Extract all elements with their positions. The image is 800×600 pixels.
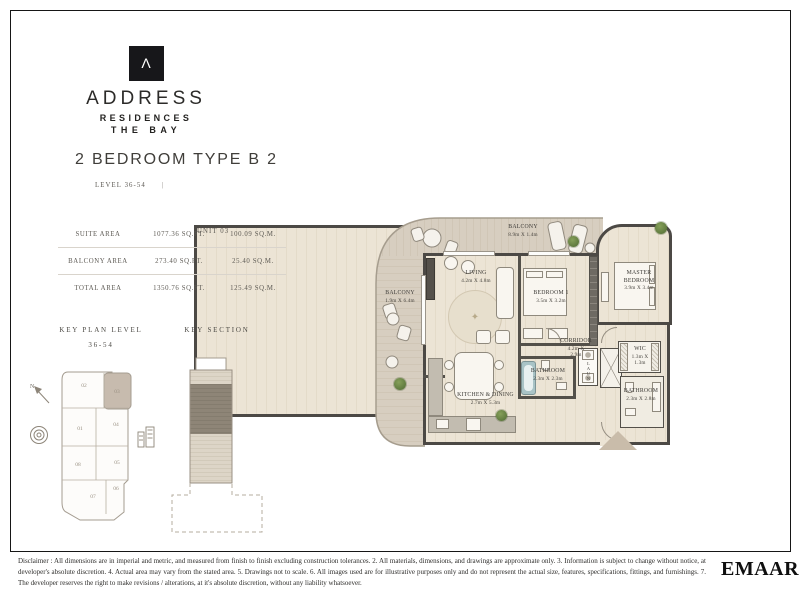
room-living-label: LIVING4.2m X 4.8m xyxy=(448,270,504,284)
section-podium-dashed xyxy=(172,483,262,532)
north-arrow-icon xyxy=(34,386,49,403)
area-sqm: 25.40 SQ.M. xyxy=(220,258,286,265)
section-lower xyxy=(190,434,232,483)
tree-icon xyxy=(31,427,48,444)
plant-icon xyxy=(568,236,579,247)
plant-icon xyxy=(394,378,406,390)
area-sqft: 273.40 SQ.FT. xyxy=(138,258,220,265)
brand-name: ADDRESS xyxy=(84,88,208,110)
key-plan-unit: 08 xyxy=(75,462,81,468)
area-sqft: 1077.36 SQ.FT. xyxy=(138,231,220,238)
room-bedroom1-label: BEDROOM 13.5m X 3.2m xyxy=(523,290,579,304)
window xyxy=(528,251,570,256)
level-unit-divider: | xyxy=(162,182,164,189)
key-plan-heading: KEY PLAN LEVEL xyxy=(41,326,161,334)
dresser xyxy=(523,328,543,339)
key-plan-unit: 07 xyxy=(90,494,96,500)
plant-icon xyxy=(655,222,667,234)
armchair xyxy=(444,256,458,270)
pillow xyxy=(526,271,543,278)
area-label: TOTAL AREA xyxy=(58,285,138,292)
table-row: BALCONY AREA 273.40 SQ.FT. 25.40 SQ.M. xyxy=(58,247,286,274)
key-plan-unit: 04 xyxy=(113,422,119,428)
city-icon xyxy=(138,427,154,447)
level-label: LEVEL 36-54 xyxy=(95,182,146,189)
area-table: SUITE AREA 1077.36 SQ.FT. 100.09 SQ.M. B… xyxy=(58,221,286,301)
armchair xyxy=(476,330,491,344)
desk xyxy=(601,272,609,302)
key-plan-unit: 02 xyxy=(81,383,87,389)
key-plan-unit: 03 xyxy=(114,389,120,395)
sink xyxy=(436,419,449,429)
section-roof xyxy=(196,358,226,370)
area-sqm: 125.49 SQ.M. xyxy=(220,285,286,292)
wall xyxy=(573,356,576,398)
sink xyxy=(625,408,636,416)
key-plan-unit: 01 xyxy=(77,426,83,432)
pillow xyxy=(546,271,563,278)
north-label: N xyxy=(30,384,35,390)
stove xyxy=(466,418,481,431)
page-title: 2 BEDROOM TYPE B 2 xyxy=(75,151,278,169)
rug: ✦ xyxy=(448,290,502,344)
level-unit-row: LEVEL 36-54 | UNIT 03 xyxy=(95,182,164,189)
key-section xyxy=(165,352,280,552)
wardrobe xyxy=(589,256,598,346)
area-sqm: 100.09 SQ.M. xyxy=(220,231,286,238)
area-label: BALCONY AREA xyxy=(58,258,138,265)
key-plan-level-range: 36-54 xyxy=(41,341,161,349)
sink xyxy=(556,382,567,390)
tv-console xyxy=(426,258,435,300)
kitchen-counter xyxy=(428,358,443,416)
key-plan-unit: 05 xyxy=(114,460,120,466)
room-bathroom2-label: BATHROOM2.3m X 2.8m xyxy=(615,388,667,402)
room-balcony-top-label: BALCONY8.9m X 1.4m xyxy=(488,224,558,238)
dining-chair xyxy=(494,360,504,370)
key-plan: N 02 03 01 04 08 05 07 06 xyxy=(20,362,170,547)
table-row: SUITE AREA 1077.36 SQ.FT. 100.09 SQ.M. xyxy=(58,221,286,247)
dining-chair xyxy=(494,382,504,392)
section-upper xyxy=(190,370,232,384)
brand-line1: RESIDENCES xyxy=(84,113,208,123)
emaar-logo: EMAAR xyxy=(721,558,799,581)
armchair xyxy=(495,330,510,344)
plant-icon xyxy=(496,410,507,421)
key-plan-unit: 06 xyxy=(113,486,119,492)
entry-marker xyxy=(599,431,637,450)
room-bathroom1-label: BATHROOM2.3m X 2.3m xyxy=(523,368,573,382)
wall xyxy=(518,396,576,399)
brand-line2: THE BAY xyxy=(84,125,208,135)
section-highlight-band xyxy=(190,384,232,434)
room-wic-label: WIC1.3m X 1.3m xyxy=(621,346,659,367)
dining-chair xyxy=(444,360,454,370)
area-sqft: 1350.76 SQ.FT. xyxy=(138,285,220,292)
floor-plan: ✦ LAUN xyxy=(368,210,798,460)
address-logo-icon: Λ xyxy=(129,46,164,81)
brochure-page: Λ ADDRESS RESIDENCES THE BAY 2 BEDROOM T… xyxy=(0,0,800,600)
area-label: SUITE AREA xyxy=(58,231,138,238)
room-master-label: MASTER BEDROOM3.9m X 3.4m xyxy=(618,270,660,292)
dining-chair xyxy=(444,382,454,392)
room-kitchen-label: KITCHEN & DINING2.7m X 5.3m xyxy=(453,392,518,406)
brand-logo: Λ ADDRESS RESIDENCES THE BAY xyxy=(84,46,208,135)
disclaimer: Disclaimer : All dimensions are in imper… xyxy=(18,556,706,589)
key-section-heading: KEY SECTION xyxy=(182,326,252,334)
room-laundry-label: LAUN xyxy=(586,361,591,381)
table-row: TOTAL AREA 1350.76 SQ.FT. 125.49 SQ.M. xyxy=(58,274,286,301)
room-corridor-label: CORRIDOR4.2m X 2.9m xyxy=(554,338,598,359)
room-balcony-left-label: BALCONY1.9m X 6.4m xyxy=(376,290,424,304)
